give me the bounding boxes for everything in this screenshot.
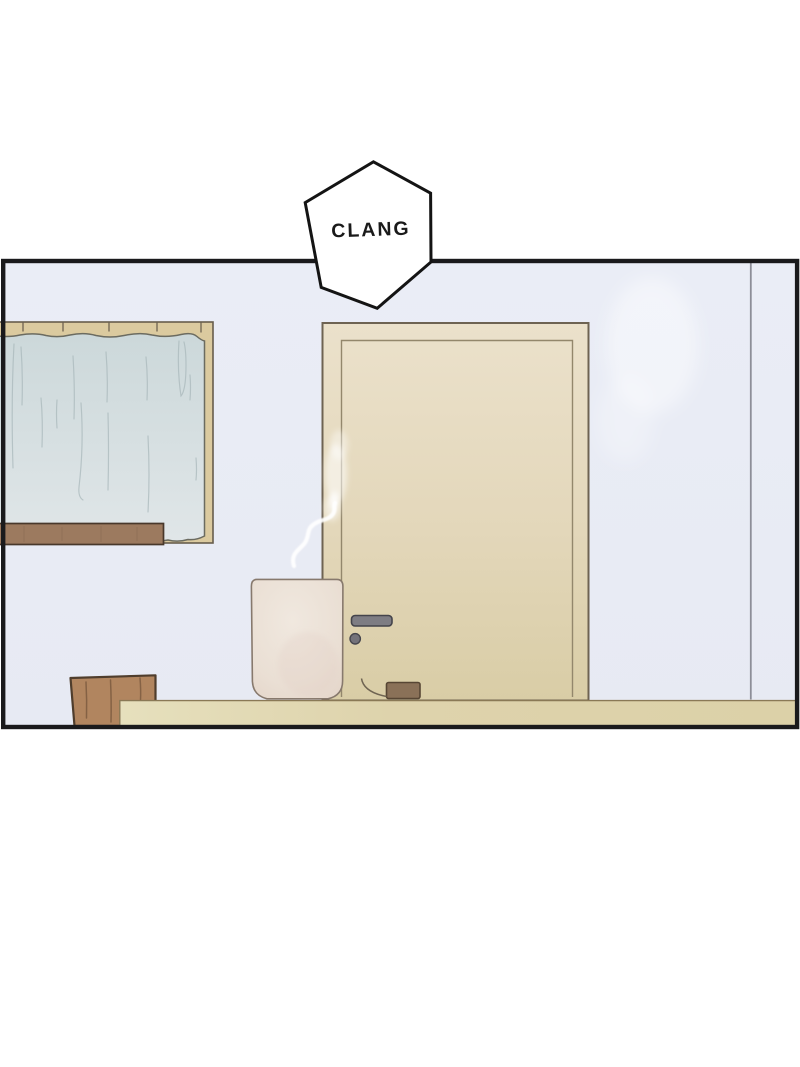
svg-text:CLANG: CLANG	[331, 218, 411, 243]
